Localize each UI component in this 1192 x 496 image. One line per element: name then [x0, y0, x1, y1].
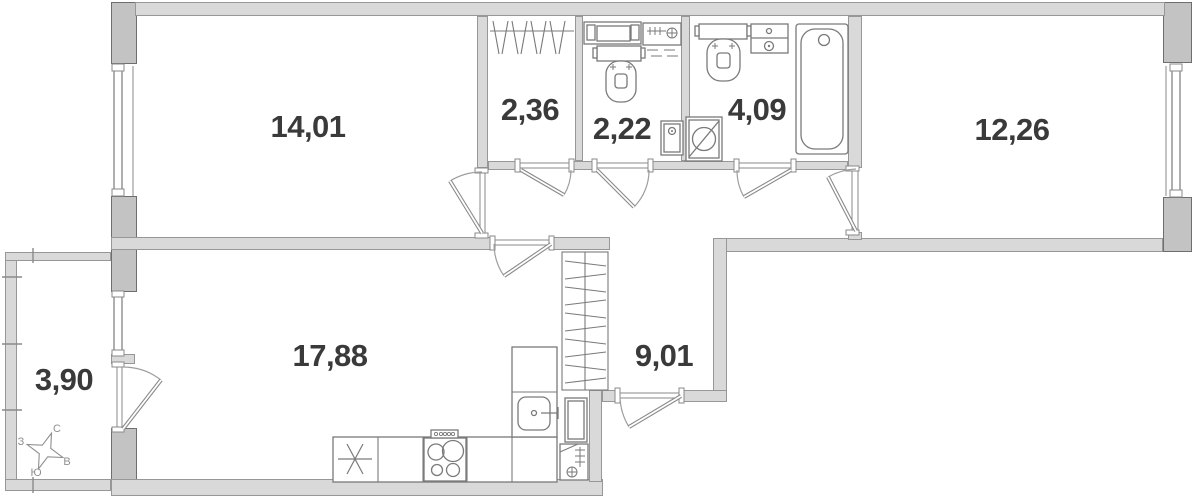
- vent-shaft-kitchen: [560, 444, 588, 480]
- apartment-floor-plan: 14,01 2,36 2,22 4,09 12,26 17,88 9,01 3,…: [0, 0, 1192, 496]
- door-bedroom: [828, 166, 859, 235]
- area-label-living-room: 14,01: [270, 109, 345, 145]
- door-kitchen-living: [490, 236, 554, 276]
- toilet-wc: [593, 46, 645, 102]
- door-bathroom: [734, 159, 796, 197]
- door-wardrobe: [515, 159, 574, 195]
- compass-east-label: В: [63, 456, 70, 468]
- compass-north-label: С: [53, 423, 61, 435]
- vent-shaft-top: [643, 23, 681, 56]
- door-wc: [592, 159, 653, 207]
- washing-machine-wc: [584, 22, 641, 44]
- compass-rose: [21, 427, 70, 476]
- door-living-room: [450, 168, 488, 238]
- bathtub: [796, 24, 848, 154]
- entrance-cabinet: [565, 398, 587, 442]
- wardrobe-rail: [490, 21, 574, 54]
- plan-linework: [0, 0, 1192, 496]
- area-label-kitchen-living: 17,88: [292, 338, 367, 374]
- vanity-sink-bathroom: [751, 24, 788, 53]
- compass-west-label: З: [18, 436, 25, 448]
- water-heater-wc: [661, 121, 683, 155]
- cooker-hood: [431, 430, 458, 438]
- toilet-bathroom: [695, 24, 751, 81]
- area-label-wc: 2,22: [593, 111, 651, 147]
- window-bedroom: [1166, 64, 1182, 197]
- area-label-bathroom: 4,09: [728, 92, 786, 128]
- area-label-hallway: 9,01: [635, 338, 693, 374]
- washing-machine-bathroom: [686, 117, 722, 161]
- area-label-wardrobe: 2,36: [501, 92, 559, 128]
- window-balcony: [112, 291, 124, 356]
- door-entrance: [615, 388, 684, 427]
- area-label-bedroom: 12,26: [974, 112, 1049, 148]
- window-living-room: [112, 64, 133, 196]
- balcony-railing-ticks: [2, 248, 33, 493]
- area-label-balcony: 3,90: [35, 362, 93, 398]
- door-balcony: [112, 362, 161, 432]
- hallway-closet: [562, 252, 608, 390]
- compass-south-label: Ю: [30, 467, 41, 479]
